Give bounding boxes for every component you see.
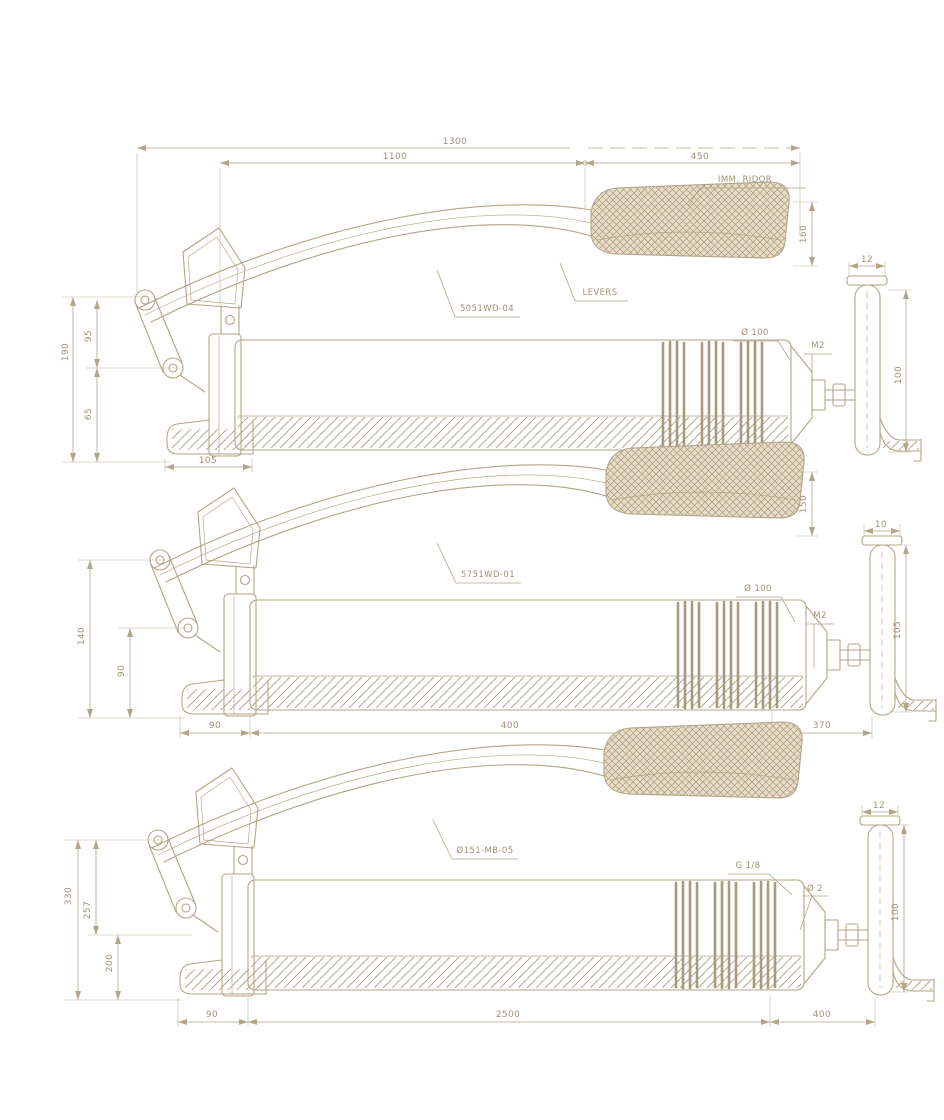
- dim-tail: 370: [813, 721, 831, 731]
- dim-handle-top: 12: [861, 255, 873, 265]
- dim-grip-height: 160: [799, 225, 809, 243]
- dim-barrel-length: 2500: [496, 1010, 521, 1020]
- drawing-sheet: 1300 1100 450 IMM. RIDOR LEVERS 5051WD-0…: [0, 0, 944, 1120]
- dim-left-lower: 90: [117, 665, 127, 677]
- callout-grip: IMM. RIDOR: [718, 175, 772, 185]
- dim-handle-height: 100: [894, 366, 904, 384]
- dim-grip-height: 150: [799, 495, 809, 513]
- view-3-dimensions: Ø151-MB-05 G 1/8 Ø 2 330 257 200 90 2500…: [64, 801, 909, 1027]
- dim-left-mid: 257: [83, 901, 93, 919]
- callout-part: 5751WD-01: [461, 570, 515, 580]
- technical-drawing: 1300 1100 450 IMM. RIDOR LEVERS 5051WD-0…: [0, 0, 944, 1120]
- dim-body-length: 1100: [383, 152, 408, 162]
- dim-barrel-length: 400: [501, 721, 519, 731]
- dim-left-lower: 65: [84, 408, 94, 420]
- callout-nozzle: M2: [811, 341, 825, 351]
- dim-foot: 90: [206, 1010, 218, 1020]
- dim-foot: 105: [199, 456, 217, 466]
- dim-left-upper: 95: [84, 330, 94, 342]
- dim-left-total: 140: [77, 627, 87, 645]
- dim-grip-length: 450: [691, 152, 709, 162]
- dim-foot: 90: [209, 721, 221, 731]
- dim-handle-top: 12: [873, 801, 885, 811]
- callout-nozzle: Ø 2: [807, 883, 823, 894]
- dim-tail: 400: [813, 1010, 831, 1020]
- callout-part: Ø151-MB-05: [456, 845, 513, 856]
- callout-nozzle: M2: [813, 611, 827, 621]
- grease-gun-view-1: [135, 182, 921, 461]
- callout-barrel-dia: Ø 100: [744, 583, 772, 594]
- dim-handle-top: 10: [875, 520, 887, 530]
- dim-handle-height: 100: [891, 903, 901, 921]
- grease-gun-view-2: [150, 442, 936, 721]
- dim-handle-height: 105: [893, 621, 903, 639]
- dim-left-lower: 200: [105, 954, 115, 972]
- grease-gun-view-3: [148, 722, 934, 1001]
- callout-lever: LEVERS: [583, 288, 618, 298]
- callout-thread: G 1/8: [736, 861, 761, 871]
- dim-left-total: 330: [64, 887, 74, 905]
- dim-overall-length: 1300: [443, 137, 468, 147]
- callout-barrel-dia: Ø 100: [741, 327, 769, 338]
- callout-part: 5051WD-04: [460, 304, 514, 314]
- dim-left-total: 190: [61, 343, 71, 361]
